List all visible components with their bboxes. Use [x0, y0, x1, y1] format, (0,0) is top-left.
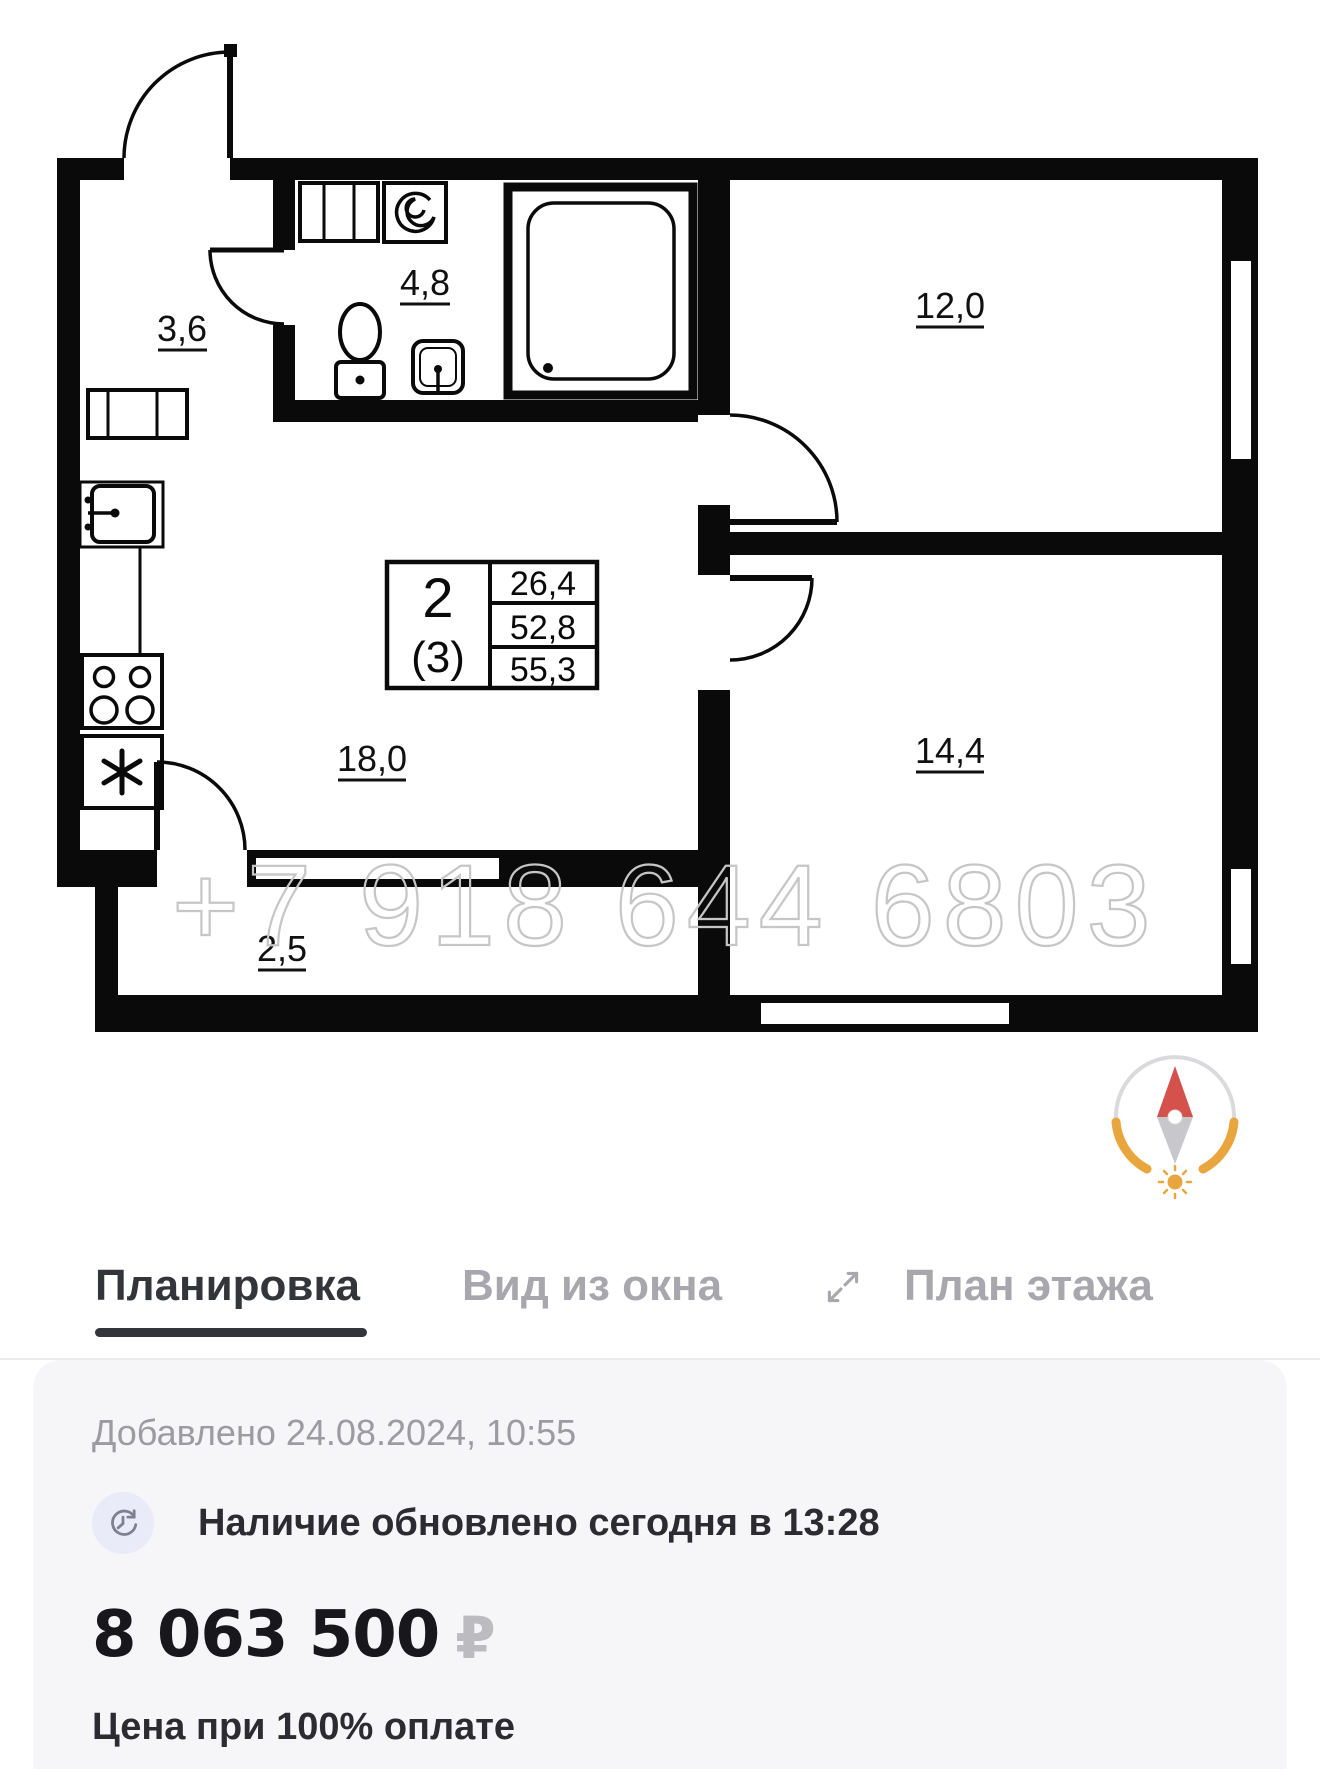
tabs-divider: [0, 1358, 1320, 1360]
bathtub-icon: [508, 187, 693, 395]
ventilation-icon: [384, 183, 446, 242]
room-label-hallway: 3,6: [157, 308, 207, 349]
door-room12: [730, 415, 837, 522]
window-room14: [1230, 868, 1252, 965]
fridge-icon: [82, 736, 162, 808]
door-balcony: [157, 762, 245, 850]
room-label-bedroom1: 12,0: [915, 285, 985, 326]
door-room14: [730, 578, 812, 660]
door-bathroom: [210, 250, 284, 324]
washing-machine-icon: [300, 183, 378, 241]
price-note: Цена при 100% оплате: [92, 1706, 1228, 1749]
compass-icon: [1116, 1057, 1234, 1198]
window-room12: [1230, 260, 1252, 460]
bathroom-fixtures: [300, 183, 693, 398]
price-value: 8 063 500: [92, 1598, 439, 1672]
washbasin-icon: [413, 341, 463, 393]
tab-floor-plan[interactable]: План этажа: [904, 1260, 1153, 1312]
tab-layout[interactable]: Планировка: [95, 1260, 360, 1312]
info-rooms-count: 2: [422, 566, 453, 629]
added-date: Добавлено 24.08.2024, 10:55: [92, 1360, 1228, 1454]
listing-info-card: Добавлено 24.08.2024, 10:55 Наличие обно…: [33, 1360, 1287, 1769]
door-entry: [124, 52, 230, 158]
watermark-phone: +7 918 644 6803: [172, 842, 1159, 970]
gallery-tabs: Планировка Вид из окна План этажа: [0, 1250, 1320, 1360]
kitchen-sink-icon: [80, 482, 163, 547]
room-label-bedroom2: 14,4: [915, 730, 985, 771]
ruble-sign: ₽: [455, 1604, 495, 1672]
availability-row: Наличие обновлено сегодня в 13:28: [92, 1492, 1228, 1554]
kitchen-fixtures: [80, 390, 187, 808]
updated-clock-icon: [92, 1492, 154, 1554]
info-area-main: 52,8: [510, 609, 576, 647]
tab-window-view[interactable]: Вид из окна: [462, 1260, 722, 1312]
sun-icon: [1159, 1166, 1191, 1198]
expand-icon[interactable]: [820, 1264, 866, 1310]
stove-icon: [82, 655, 162, 728]
snowflake-icon: [104, 751, 140, 793]
info-rooms-alt: (3): [411, 633, 465, 682]
apartment-info-box: 2 (3) 26,4 52,8 55,3: [387, 562, 597, 689]
toilet-icon: [336, 304, 384, 398]
compass-north-arrow: [1157, 1066, 1193, 1117]
availability-text: Наличие обновлено сегодня в 13:28: [198, 1502, 880, 1545]
info-area-living: 26,4: [510, 565, 576, 603]
floor-plan-image[interactable]: 2 (3) 26,4 52,8 55,3 3,6 4,8 12,0 18,0 1…: [0, 0, 1320, 1250]
kitchen-cabinet-icon: [88, 390, 187, 438]
room-label-kitchen-living: 18,0: [337, 738, 407, 779]
window-bottom: [760, 1002, 1010, 1025]
info-area-total: 55,3: [510, 651, 576, 689]
price-row: 8 063 500 ₽: [92, 1598, 1228, 1672]
room-label-bathroom: 4,8: [400, 262, 450, 303]
active-tab-underline: [95, 1328, 367, 1337]
